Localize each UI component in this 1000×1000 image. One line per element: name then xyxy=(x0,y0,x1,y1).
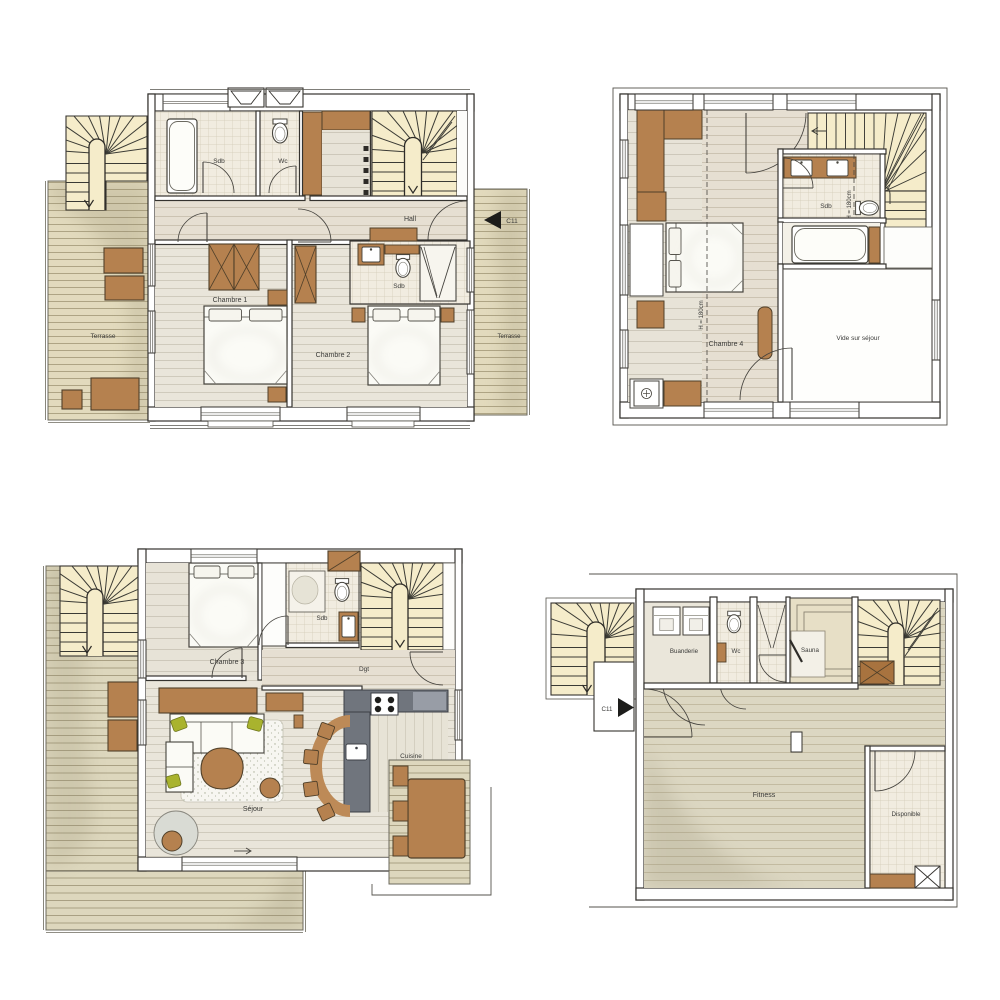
svg-text:Wc: Wc xyxy=(278,158,288,165)
svg-text:Séjour: Séjour xyxy=(243,806,264,813)
svg-text:Dgt: Dgt xyxy=(359,666,369,673)
svg-text:Chambre 2: Chambre 2 xyxy=(316,352,351,359)
svg-text:Sdb: Sdb xyxy=(820,203,832,210)
svg-text:Terrasse: Terrasse xyxy=(497,334,521,340)
svg-text:C11: C11 xyxy=(602,706,613,713)
svg-text:H = 180cm: H = 180cm xyxy=(847,190,853,219)
svg-text:Hall: Hall xyxy=(404,216,417,223)
svg-text:Terrasse: Terrasse xyxy=(91,333,116,340)
svg-text:Sauna: Sauna xyxy=(801,647,819,654)
svg-text:Cuisine: Cuisine xyxy=(400,753,422,760)
svg-text:C11: C11 xyxy=(506,218,518,225)
svg-text:Vide sur séjour: Vide sur séjour xyxy=(836,335,880,342)
svg-text:Sdb: Sdb xyxy=(316,615,328,622)
svg-text:Fitness: Fitness xyxy=(753,792,776,799)
svg-text:Sdb: Sdb xyxy=(393,283,405,290)
svg-text:Disponible: Disponible xyxy=(892,811,921,818)
svg-text:Chambre 4: Chambre 4 xyxy=(709,341,744,348)
svg-text:Wc: Wc xyxy=(732,648,741,655)
svg-text:Buanderie: Buanderie xyxy=(670,648,699,655)
svg-text:H = 180cm: H = 180cm xyxy=(699,300,705,329)
svg-text:Chambre 1: Chambre 1 xyxy=(213,297,248,304)
